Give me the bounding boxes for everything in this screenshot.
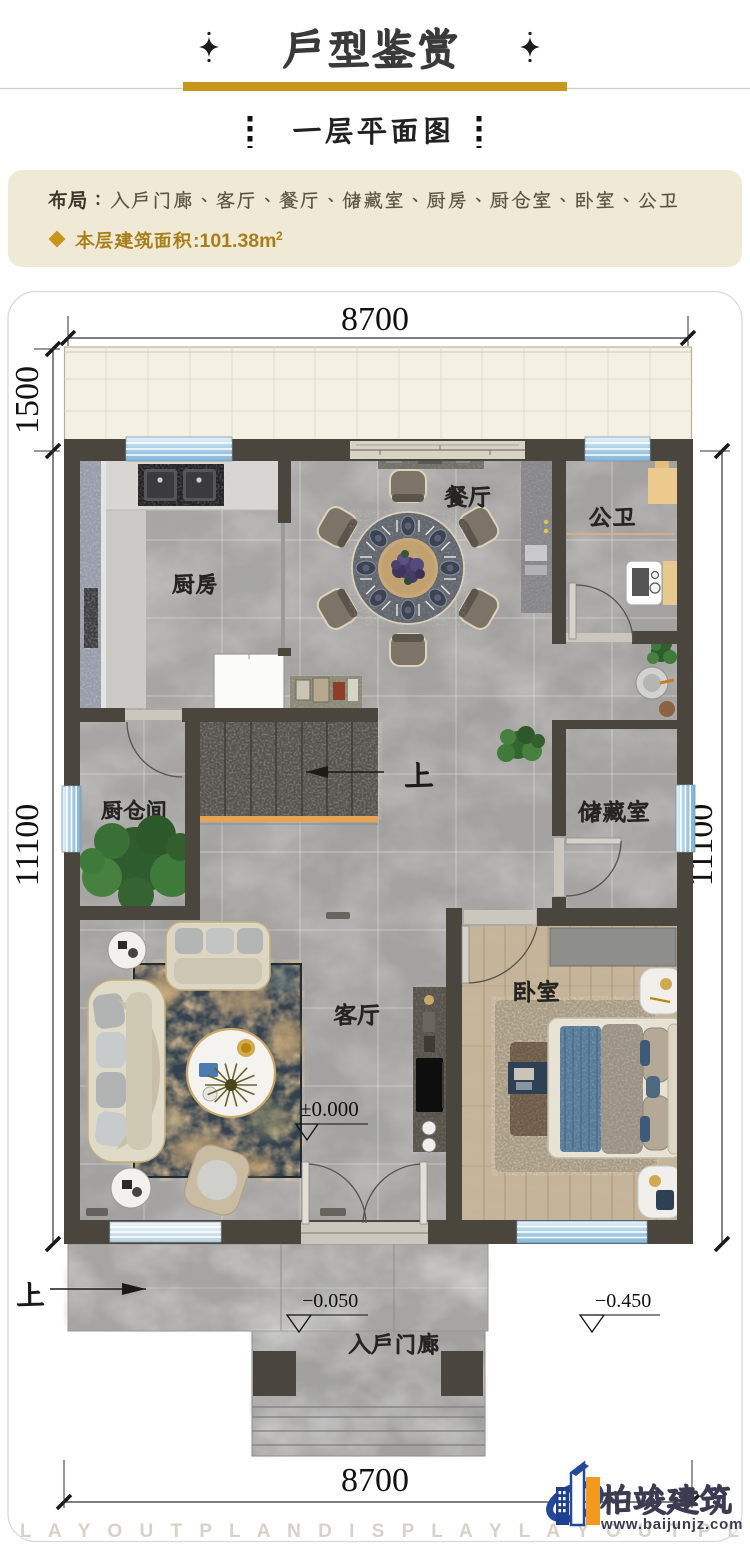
svg-text:±0.000: ±0.000 bbox=[300, 1097, 359, 1121]
svg-text:www.baijunjz.com: www.baijunjz.com bbox=[600, 1516, 743, 1533]
svg-text:−0.450: −0.450 bbox=[595, 1290, 651, 1312]
svg-text:2: 2 bbox=[276, 229, 283, 243]
svg-text:8700: 8700 bbox=[341, 1462, 409, 1499]
svg-text:−0.050: −0.050 bbox=[302, 1290, 358, 1312]
svg-text:8700: 8700 bbox=[341, 301, 409, 338]
svg-text::101.38m: :101.38m bbox=[193, 230, 276, 252]
svg-text:1500: 1500 bbox=[9, 366, 46, 434]
svg-text:11100: 11100 bbox=[9, 804, 46, 886]
